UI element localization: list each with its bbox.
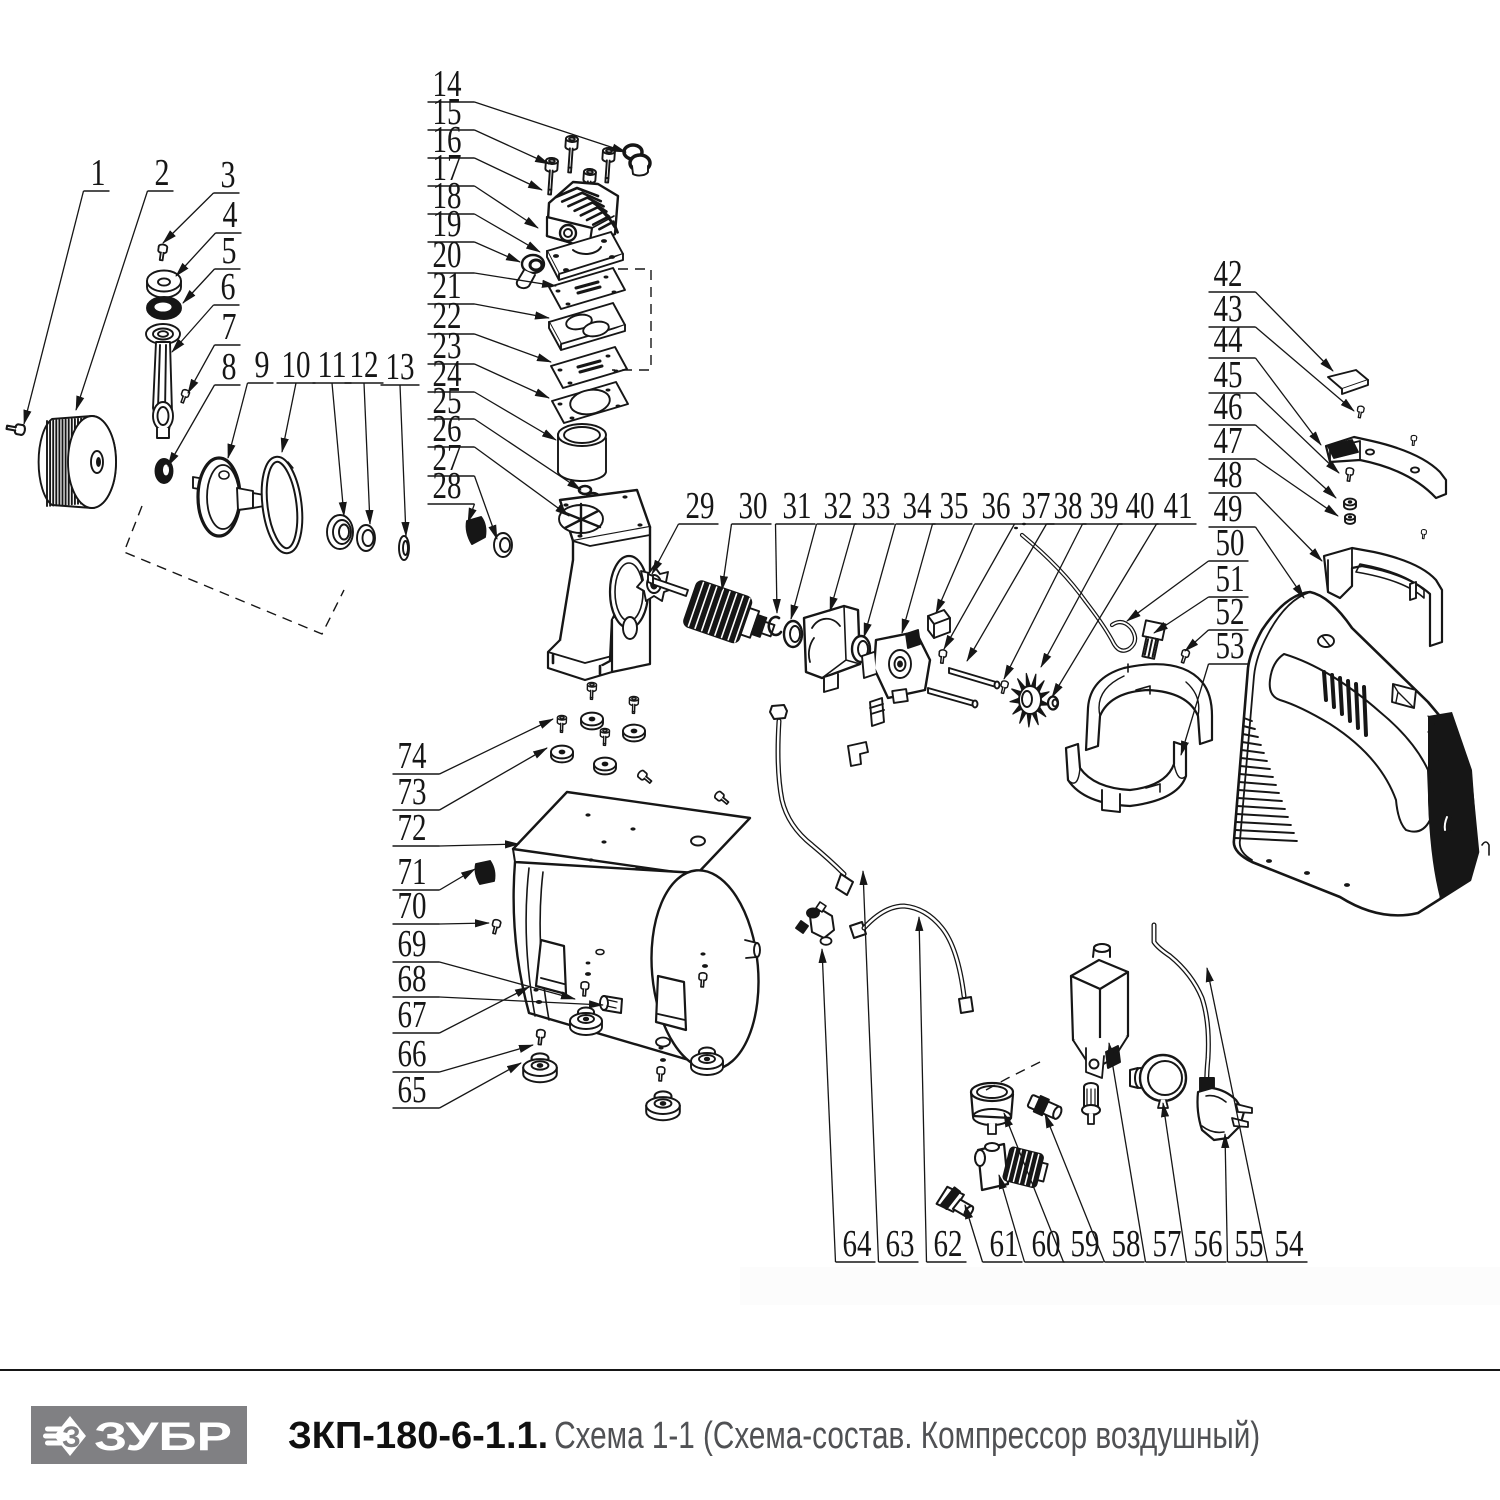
svg-text:39: 39 [1090, 485, 1119, 527]
svg-text:38: 38 [1054, 485, 1083, 527]
svg-text:6: 6 [221, 266, 236, 308]
svg-text:58: 58 [1112, 1223, 1141, 1265]
svg-text:30: 30 [739, 485, 768, 527]
svg-text:12: 12 [350, 344, 379, 386]
svg-text:34: 34 [903, 485, 932, 527]
svg-text:41: 41 [1164, 485, 1193, 527]
svg-text:37: 37 [1022, 485, 1051, 527]
svg-text:65: 65 [398, 1069, 427, 1111]
svg-text:54: 54 [1275, 1223, 1304, 1265]
svg-text:35: 35 [940, 485, 969, 527]
svg-text:33: 33 [862, 485, 891, 527]
svg-text:56: 56 [1194, 1223, 1223, 1265]
svg-text:ЗКП-180-6-1.1.Схема 1-1 (Схема: ЗКП-180-6-1.1.Схема 1-1 (Схема-состав. К… [288, 1415, 1260, 1457]
svg-text:61: 61 [990, 1223, 1019, 1265]
svg-text:9: 9 [255, 344, 270, 386]
svg-text:1: 1 [91, 152, 106, 194]
svg-text:28: 28 [433, 465, 462, 507]
svg-text:62: 62 [934, 1223, 963, 1265]
svg-text:36: 36 [982, 485, 1011, 527]
svg-text:72: 72 [398, 807, 427, 849]
svg-text:29: 29 [686, 485, 715, 527]
svg-text:7: 7 [222, 306, 237, 348]
svg-text:57: 57 [1153, 1223, 1182, 1265]
svg-text:63: 63 [886, 1223, 915, 1265]
svg-text:31: 31 [783, 485, 812, 527]
svg-text:70: 70 [398, 885, 427, 927]
svg-text:40: 40 [1126, 485, 1155, 527]
svg-text:64: 64 [843, 1223, 872, 1265]
svg-text:10: 10 [282, 344, 311, 386]
svg-text:55: 55 [1235, 1223, 1264, 1265]
svg-text:13: 13 [386, 346, 415, 388]
svg-text:З: З [62, 1421, 81, 1454]
svg-text:32: 32 [824, 485, 853, 527]
svg-text:2: 2 [155, 152, 170, 194]
svg-text:59: 59 [1071, 1223, 1100, 1265]
svg-text:53: 53 [1216, 625, 1245, 667]
svg-text:8: 8 [222, 346, 237, 388]
svg-text:3: 3 [221, 154, 236, 196]
svg-text:ЗУБР: ЗУБР [94, 1415, 232, 1459]
svg-text:67: 67 [398, 994, 427, 1036]
svg-text:11: 11 [318, 344, 347, 386]
